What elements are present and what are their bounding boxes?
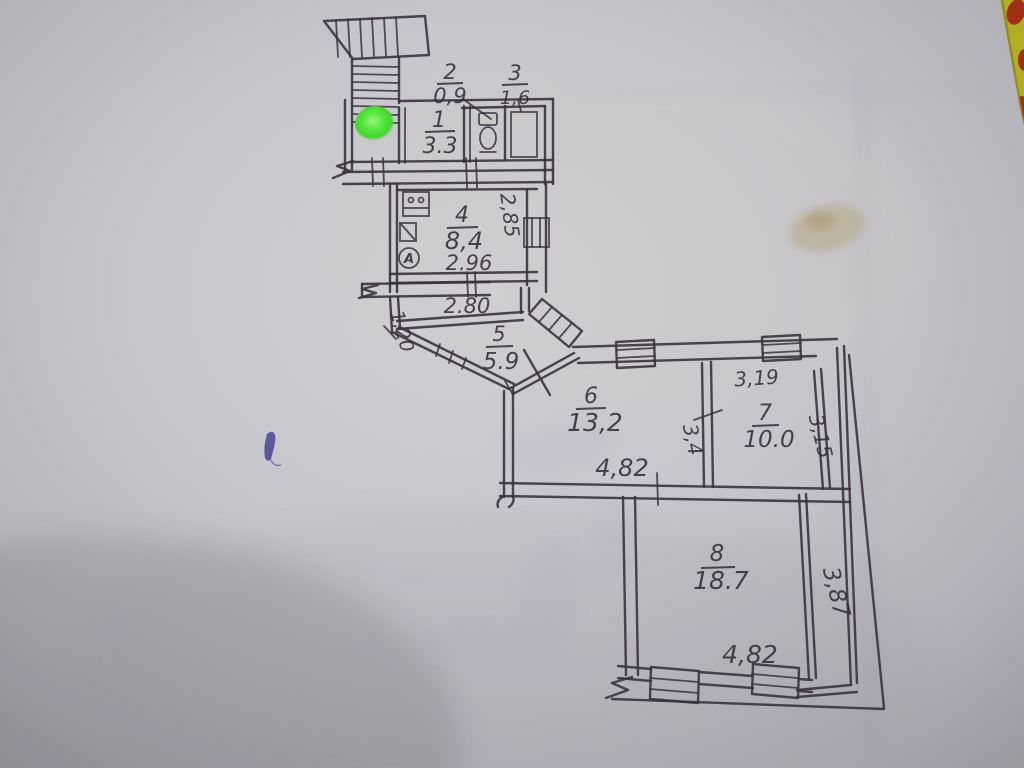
- room3-number: 3: [508, 61, 521, 85]
- room8-width-dim: 4,82: [722, 640, 778, 669]
- room1-number: 1: [432, 108, 446, 133]
- room1-area: 3.3: [423, 134, 458, 159]
- room4-number: 4: [455, 203, 469, 228]
- room6-width-dim: 4,82: [595, 454, 648, 482]
- floor-plan-canvas: A: [0, 0, 1024, 768]
- room6-area: 13,2: [567, 408, 623, 437]
- room3-area: 1,6: [500, 87, 530, 109]
- room8-area: 18.7: [693, 566, 749, 595]
- room6-number: 6: [584, 384, 598, 409]
- room7-area: 10.0: [743, 427, 794, 453]
- room2-number: 2: [443, 60, 456, 84]
- room5-area: 5.9: [483, 349, 520, 375]
- room4-width-dim: 2.96: [446, 251, 493, 275]
- green-marker-dot: [355, 106, 395, 142]
- floor-plan-photo: A: [0, 0, 1024, 768]
- room7-top-dim: 3,19: [733, 364, 779, 391]
- gas-meter-label: A: [403, 252, 414, 267]
- room2-area: 0,9: [433, 84, 466, 108]
- room5-number: 5: [492, 322, 505, 346]
- room7-number: 7: [758, 401, 772, 426]
- room5-top-dim: 2.80: [444, 294, 491, 318]
- room8-number: 8: [710, 541, 725, 567]
- junction-tick: [657, 473, 658, 505]
